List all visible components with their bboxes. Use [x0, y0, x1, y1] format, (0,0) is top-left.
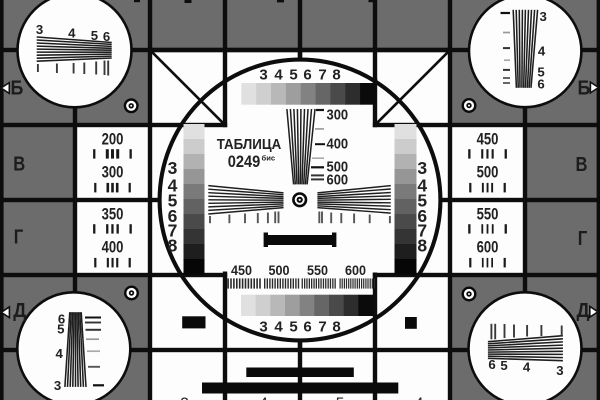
svg-text:6: 6 — [303, 67, 311, 84]
svg-text:5: 5 — [289, 67, 297, 84]
svg-text:3: 3 — [259, 319, 267, 336]
svg-text:В: В — [576, 153, 588, 176]
svg-text:400: 400 — [327, 136, 349, 152]
svg-text:4: 4 — [274, 67, 283, 84]
svg-text:8: 8 — [168, 235, 178, 255]
svg-text:600: 600 — [345, 263, 366, 278]
svg-text:Б: Б — [11, 77, 24, 100]
svg-text:ТАБЛИЦА: ТАБЛИЦА — [217, 137, 282, 153]
svg-text:3: 3 — [54, 378, 61, 393]
svg-text:6: 6 — [537, 77, 544, 92]
svg-text:4: 4 — [538, 43, 546, 58]
svg-text:4: 4 — [68, 25, 76, 40]
svg-text:0249: 0249 — [228, 153, 261, 171]
svg-text:Б: Б — [578, 76, 591, 99]
svg-text:5: 5 — [289, 319, 297, 336]
svg-text:200: 200 — [102, 131, 124, 149]
svg-text:8: 8 — [332, 67, 340, 84]
svg-text:500: 500 — [269, 263, 290, 278]
svg-text:5: 5 — [57, 321, 64, 336]
svg-text:4: 4 — [415, 396, 424, 400]
svg-text:7: 7 — [318, 67, 326, 84]
svg-text:500: 500 — [477, 163, 499, 181]
svg-text:8: 8 — [332, 319, 340, 336]
svg-text:бис: бис — [262, 153, 276, 162]
svg-text:5: 5 — [91, 28, 98, 43]
svg-text:6: 6 — [303, 319, 311, 336]
svg-text:4: 4 — [523, 359, 531, 374]
svg-text:3: 3 — [540, 9, 547, 24]
svg-text:450: 450 — [231, 263, 252, 278]
svg-text:Д: Д — [13, 299, 26, 322]
svg-text:Г: Г — [578, 227, 588, 250]
svg-text:300: 300 — [327, 108, 349, 124]
svg-text:6: 6 — [103, 29, 110, 44]
svg-text:450: 450 — [477, 131, 499, 149]
svg-text:4: 4 — [56, 346, 64, 361]
svg-text:350: 350 — [102, 206, 124, 224]
svg-text:4: 4 — [274, 319, 283, 336]
svg-text:Д: Д — [577, 299, 590, 322]
svg-text:7: 7 — [318, 319, 326, 336]
svg-text:5: 5 — [500, 358, 507, 373]
svg-text:4: 4 — [259, 396, 268, 400]
svg-text:600: 600 — [477, 238, 499, 256]
svg-text:3: 3 — [36, 22, 43, 37]
svg-text:550: 550 — [477, 206, 499, 224]
svg-text:3: 3 — [180, 396, 189, 400]
svg-text:3: 3 — [259, 67, 267, 84]
svg-text:8: 8 — [417, 235, 427, 255]
svg-text:300: 300 — [102, 163, 124, 181]
svg-text:6: 6 — [488, 357, 495, 372]
svg-text:400: 400 — [102, 238, 124, 256]
svg-text:3: 3 — [556, 363, 563, 378]
svg-text:600: 600 — [327, 173, 349, 189]
svg-text:Г: Г — [14, 226, 24, 249]
svg-text:В: В — [13, 152, 25, 175]
svg-text:5: 5 — [336, 396, 345, 400]
svg-text:550: 550 — [307, 263, 328, 278]
